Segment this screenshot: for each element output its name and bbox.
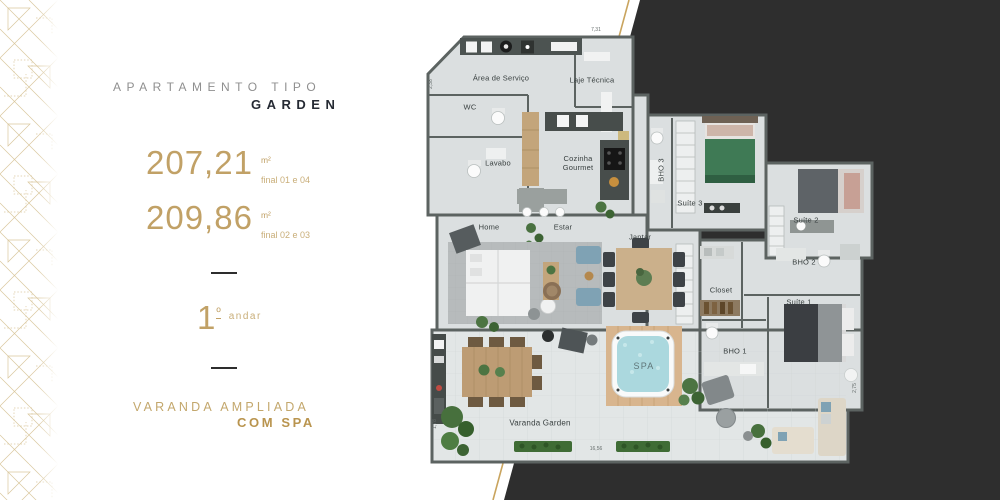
apartment-type-title: APARTAMENTO TIPO <box>113 80 321 94</box>
floor-indicator: 1 º andar <box>197 301 262 334</box>
tagline-line1: VARANDA AMPLIADA <box>133 400 309 414</box>
divider-dash <box>211 272 237 274</box>
area-value-2: 209,86 <box>146 201 253 234</box>
area-note-1: final 01 e 04 <box>261 175 310 185</box>
area-spec-1: 207,21 m² final 01 e 04 <box>146 146 310 189</box>
room-label-bho3: BHO 3 <box>657 158 666 182</box>
room-label-cozinha: Cozinha Gourmet <box>555 154 601 172</box>
room-label-estar: Estar <box>554 223 573 232</box>
room-label-varanda: Varanda Garden <box>509 419 570 428</box>
room-label-laje-tecnica: Laje Técnica <box>569 76 615 85</box>
area-value-1: 207,21 <box>146 146 253 179</box>
floor-ordinal: º <box>216 305 220 319</box>
area-unit-2: m² <box>261 210 271 220</box>
area-note-2: final 02 e 03 <box>261 230 310 240</box>
room-label-home: Home <box>479 223 500 232</box>
area-spec-2: 209,86 m² final 02 e 03 <box>146 201 310 244</box>
room-label-lavabo: Lavabo <box>485 159 511 168</box>
info-panel: APARTAMENTO TIPO GARDEN 207,21 m² final … <box>0 0 420 500</box>
divider-dash <box>211 367 237 369</box>
dimension-top: 7,31 <box>591 27 601 33</box>
dimension-left-top: 2,38 <box>428 79 434 89</box>
floor-number: 1 <box>197 301 215 334</box>
area-unit-1: m² <box>261 155 271 165</box>
room-label-bho2: BHO 2 <box>792 258 816 267</box>
room-label-jantar: Jantar <box>629 233 651 242</box>
dimension-bottom: 16,56 <box>590 446 603 452</box>
room-label-area-servico: Área de Serviço <box>473 74 529 83</box>
room-label-spa: SPA <box>634 361 655 371</box>
room-label-suite3: Suíte 3 <box>677 199 702 208</box>
tagline-line2: COM SPA <box>237 415 315 430</box>
room-label-bho1: BHO 1 <box>723 347 747 356</box>
room-label-suite2: Suíte 2 <box>793 216 818 225</box>
dimension-right: 2,75 <box>852 383 858 393</box>
floor-label: andar <box>229 311 262 334</box>
apartment-type-name: GARDEN <box>251 97 340 112</box>
room-label-wc: WC <box>464 103 477 112</box>
apartment-floorplan-page: Área de Serviço Laje Técnica WC Lavabo C… <box>0 0 1000 500</box>
room-label-closet: Closet <box>710 286 732 295</box>
dimension-left-bottom: 1,78 <box>432 419 438 429</box>
room-label-suite1: Suíte 1 <box>786 298 811 307</box>
